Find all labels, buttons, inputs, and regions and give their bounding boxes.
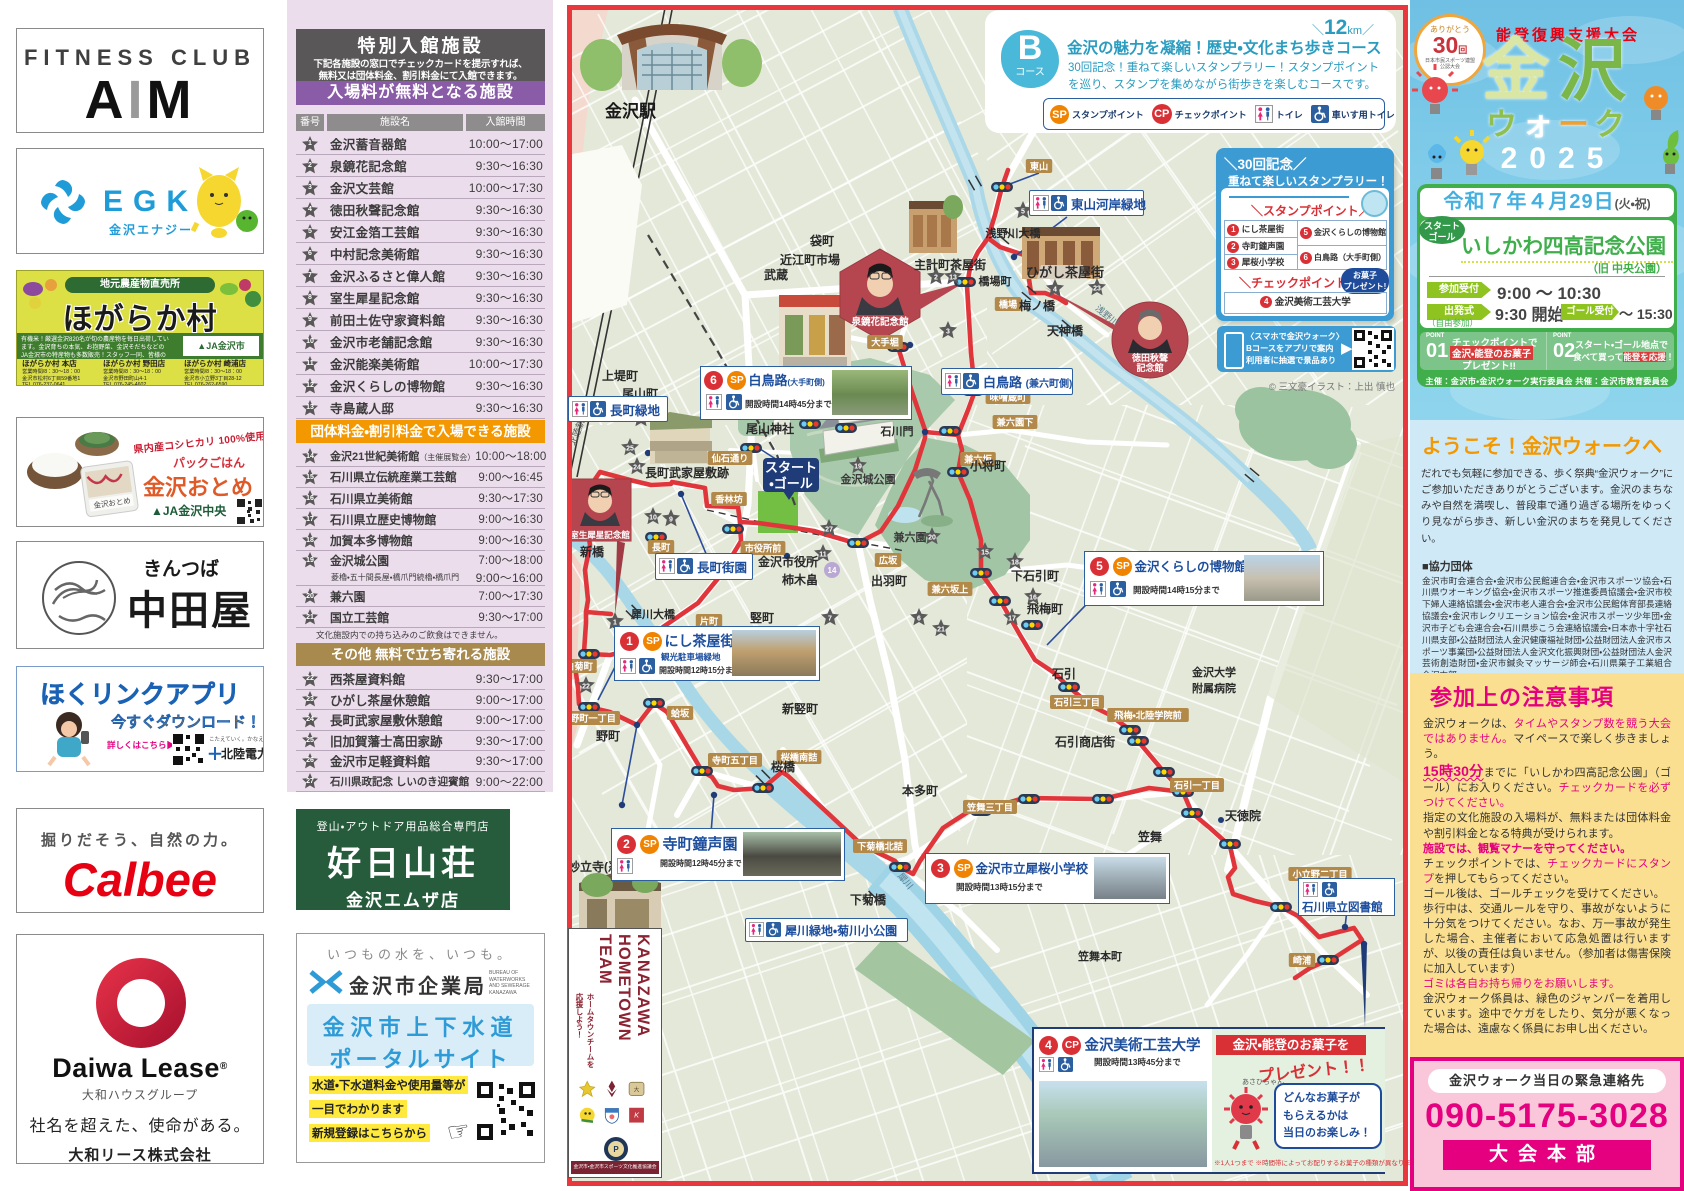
svg-text:22: 22 [582,684,590,691]
svg-text:長町: 長町 [652,543,671,553]
svg-text:19: 19 [854,464,862,471]
svg-text:尾山神社: 尾山神社 [746,421,794,436]
svg-text:17: 17 [1008,616,1016,623]
svg-text:香林坊: 香林坊 [714,494,743,505]
svg-text:本多町: 本多町 [901,783,938,798]
svg-text:兼六坂上: 兼六坂上 [931,584,969,595]
svg-text:金沢城公園: 金沢城公園 [841,472,896,486]
svg-text:3: 3 [946,329,950,336]
svg-text:主計町茶屋街: 主計町茶屋街 [914,257,986,272]
svg-text:竪町: 竪町 [750,611,774,625]
svg-text:14: 14 [828,566,837,575]
svg-text:仙石通り: 仙石通り [711,453,749,464]
svg-text:附属病院: 附属病院 [1192,681,1236,695]
svg-text:室生犀星記念館: 室生犀星記念館 [570,530,630,540]
svg-text:天徳院: 天徳院 [1225,808,1261,823]
svg-text:大手堀: 大手堀 [871,337,899,348]
svg-text:野町: 野町 [596,729,620,743]
svg-text:金沢大学: 金沢大学 [1192,665,1236,679]
svg-text:石川門: 石川門 [880,425,914,438]
svg-text:笠舞三丁目: 笠舞三丁目 [966,802,1013,813]
svg-text:徳田秋聲: 徳田秋聲 [1131,352,1168,363]
svg-text:新竪町: 新竪町 [781,701,818,716]
svg-text:大: 大 [634,1085,640,1093]
svg-text:小将町: 小将町 [970,458,1006,473]
svg-text:片町: 片町 [700,616,719,627]
svg-text:2: 2 [934,275,938,282]
svg-text:27: 27 [825,527,833,534]
svg-text:20: 20 [928,535,936,542]
svg-text:石引三丁目: 石引三丁目 [1053,697,1100,708]
svg-text:24: 24 [633,465,641,472]
svg-text:5: 5 [1021,209,1025,216]
svg-text:犀川大橋: 犀川大橋 [630,607,676,621]
svg-text:下菊橋: 下菊橋 [850,892,887,907]
svg-text:21: 21 [937,627,945,634]
svg-text:23: 23 [1093,286,1101,293]
svg-text:上堤町: 上堤町 [602,368,638,383]
svg-text:笠舞: 笠舞 [1137,829,1162,844]
svg-text:広坂: 広坂 [878,555,898,566]
svg-text:石引一丁目: 石引一丁目 [1173,780,1220,791]
svg-text:10: 10 [649,515,657,522]
svg-text:下石引町: 下石引町 [1011,569,1059,583]
svg-text:蛤坂: 蛤坂 [671,708,690,719]
svg-text:下菊橋北詰: 下菊橋北詰 [857,841,904,852]
svg-text:記念館: 記念館 [1136,362,1163,373]
svg-text:梅ノ橋: 梅ノ橋 [1019,298,1056,313]
svg-text:11: 11 [819,552,827,559]
svg-text:飛梅・北陸学院前: 飛梅・北陸学院前 [1113,710,1181,721]
svg-text:東山: 東山 [1030,161,1048,172]
svg-text:橋場: 橋場 [999,299,1018,310]
svg-text:15: 15 [981,550,989,557]
svg-text:笠舞本町: 笠舞本町 [1077,949,1122,963]
svg-text:泉鏡花記念館: 泉鏡花記念館 [850,316,909,328]
svg-text:新橋: 新橋 [579,544,605,559]
svg-text:橋場町: 橋場町 [979,274,1012,288]
svg-text:野町一丁目: 野町一丁目 [570,714,616,724]
svg-text:柿木畠: 柿木畠 [782,572,818,587]
svg-text:16: 16 [1029,595,1037,602]
svg-text:飛梅町: 飛梅町 [1026,601,1063,616]
svg-text:石引: 石引 [1051,667,1076,681]
svg-text:ひがし茶屋街: ひがし茶屋街 [1026,265,1104,280]
svg-text:金沢市役所: 金沢市役所 [758,554,818,569]
svg-text:7: 7 [828,616,832,623]
svg-text:兼六園: 兼六園 [894,530,927,544]
svg-text:崎浦: 崎浦 [1293,955,1311,966]
svg-text:25: 25 [626,446,634,453]
svg-text:18: 18 [1011,560,1019,567]
svg-text:天神橋: 天神橋 [1047,323,1084,338]
svg-text:4: 4 [1053,287,1057,294]
svg-text:袋町: 袋町 [809,233,834,248]
svg-text:市役所前: 市役所前 [745,543,782,554]
svg-text:出羽町: 出羽町 [871,573,907,588]
svg-text:兼六園下: 兼六園下 [996,417,1034,428]
svg-text:石引商店街: 石引商店街 [1054,734,1115,749]
svg-text:武蔵: 武蔵 [764,267,788,282]
svg-text:6: 6 [917,616,921,623]
svg-text:桜橋: 桜橋 [771,759,796,774]
svg-text:9: 9 [669,517,673,524]
svg-text:近江町市場: 近江町市場 [780,252,840,267]
svg-text:P: P [613,1145,619,1154]
svg-text:金沢駅: 金沢駅 [605,101,657,121]
svg-text:13: 13 [949,275,957,282]
svg-text:長町武家屋敷跡: 長町武家屋敷跡 [645,465,729,480]
svg-text:寺町五丁目: 寺町五丁目 [712,755,758,766]
